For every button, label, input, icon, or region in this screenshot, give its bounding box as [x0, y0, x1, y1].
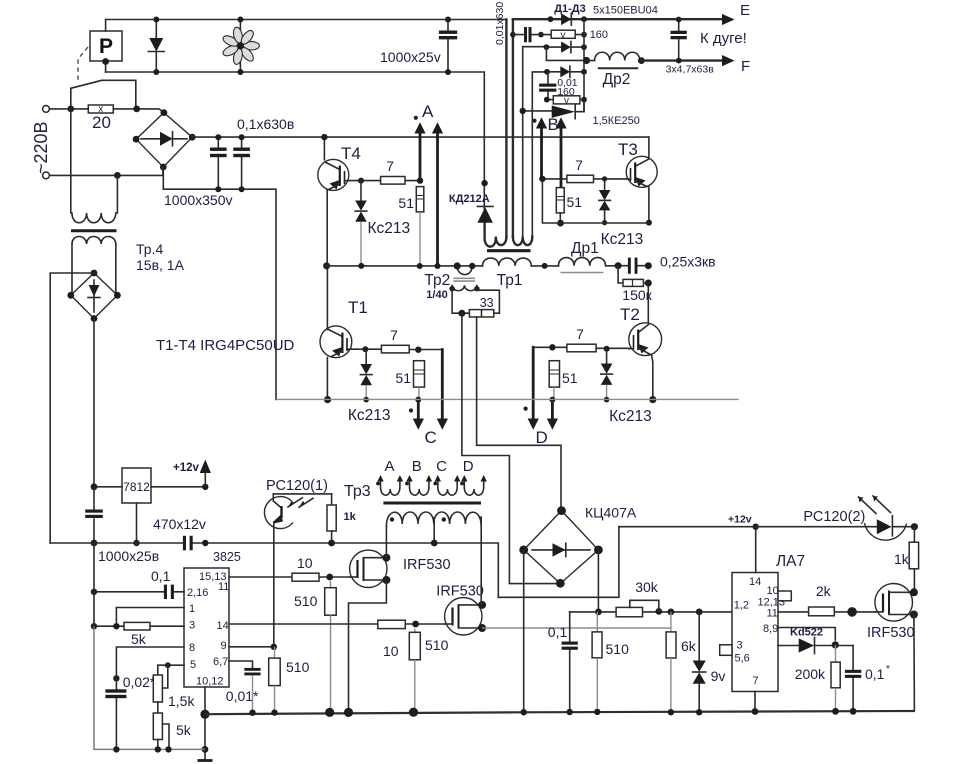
- svg-text:5,6: 5,6: [735, 653, 750, 665]
- svg-text:v: v: [564, 96, 569, 107]
- svg-text:7: 7: [576, 326, 584, 342]
- svg-text:1k: 1k: [344, 511, 357, 523]
- svg-text:0,25х3кв: 0,25х3кв: [660, 254, 716, 270]
- svg-text:В: В: [548, 115, 559, 134]
- svg-text:Тр1: Тр1: [497, 272, 523, 289]
- svg-text:200k: 200k: [795, 666, 826, 682]
- svg-text:6,7: 6,7: [213, 656, 228, 668]
- svg-text:7: 7: [575, 157, 583, 173]
- svg-text:1: 1: [189, 603, 195, 615]
- svg-text:v: v: [561, 30, 566, 41]
- svg-text:IRF530: IRF530: [867, 625, 915, 641]
- svg-text:7812: 7812: [123, 480, 150, 494]
- svg-text:0,02*: 0,02*: [123, 674, 156, 690]
- svg-text:РС120(2): РС120(2): [803, 509, 865, 525]
- svg-text:Др1: Др1: [571, 240, 599, 257]
- svg-text:КЦ407А: КЦ407А: [585, 505, 637, 521]
- svg-text:8: 8: [189, 642, 195, 654]
- svg-text:11: 11: [767, 608, 778, 620]
- svg-text:Тр2: Тр2: [424, 272, 450, 289]
- svg-text:P: P: [99, 35, 113, 58]
- svg-text:Т2: Т2: [620, 305, 640, 324]
- svg-text:14: 14: [749, 576, 761, 588]
- svg-text:Kd522: Kd522: [790, 627, 823, 639]
- svg-text:51: 51: [567, 194, 583, 210]
- svg-text:30k: 30k: [635, 579, 659, 595]
- svg-text:9: 9: [221, 640, 227, 652]
- svg-text:Кс213: Кс213: [368, 220, 411, 237]
- svg-text:10: 10: [383, 643, 399, 659]
- svg-text:1,2: 1,2: [734, 600, 749, 612]
- svg-text:В: В: [412, 458, 422, 475]
- svg-text:510: 510: [425, 637, 449, 653]
- svg-text:1/40: 1/40: [426, 289, 447, 301]
- svg-text:D: D: [463, 458, 474, 475]
- svg-text:+12v: +12v: [728, 514, 752, 526]
- svg-text:3: 3: [737, 640, 743, 652]
- svg-text:0,1: 0,1: [151, 568, 171, 584]
- svg-text:+12v: +12v: [173, 462, 200, 474]
- svg-text:D: D: [536, 428, 548, 447]
- svg-text:1,5k: 1,5k: [168, 693, 195, 709]
- svg-text:IRF530: IRF530: [403, 557, 451, 573]
- svg-text:10: 10: [767, 585, 779, 597]
- svg-text:10: 10: [297, 555, 313, 571]
- svg-text:Кс213: Кс213: [348, 407, 391, 424]
- svg-text:Кс213: Кс213: [601, 231, 644, 248]
- svg-text:1,5КЕ250: 1,5КЕ250: [593, 115, 640, 127]
- svg-text:8,9: 8,9: [763, 623, 778, 635]
- svg-text:3х4,7х63в: 3х4,7х63в: [666, 64, 715, 76]
- svg-text:6k: 6k: [681, 638, 697, 654]
- svg-text:Т1: Т1: [348, 298, 368, 317]
- svg-text:150к: 150к: [622, 287, 652, 303]
- svg-text:А: А: [384, 458, 394, 475]
- svg-text:51: 51: [395, 370, 411, 386]
- svg-text:3825: 3825: [213, 550, 241, 564]
- svg-text:14: 14: [217, 620, 229, 632]
- svg-text:5х150EBU04: 5х150EBU04: [593, 5, 658, 17]
- svg-text:1000x25v: 1000x25v: [380, 49, 441, 65]
- svg-text:5k: 5k: [131, 631, 147, 647]
- svg-text:С: С: [436, 458, 447, 475]
- svg-text:Др2: Др2: [603, 71, 631, 88]
- svg-text:РС120(1): РС120(1): [266, 478, 328, 494]
- svg-text:20: 20: [92, 113, 111, 132]
- svg-text:F: F: [741, 58, 750, 75]
- svg-text:7: 7: [753, 675, 759, 687]
- svg-text:К дуге!: К дуге!: [700, 30, 747, 47]
- svg-text:0,01х630: 0,01х630: [494, 2, 506, 45]
- svg-text:КД212А: КД212А: [449, 193, 490, 205]
- svg-text:470х12v: 470х12v: [153, 516, 206, 532]
- svg-text:0,1: 0,1: [865, 666, 885, 682]
- svg-text:Тр3: Тр3: [344, 483, 371, 500]
- svg-text:Д1-Д3: Д1-Д3: [554, 3, 586, 15]
- svg-text:7: 7: [386, 158, 394, 174]
- svg-text:0,01*: 0,01*: [226, 688, 259, 704]
- svg-text:2k: 2k: [816, 583, 832, 599]
- svg-text:ЛА7: ЛА7: [776, 553, 805, 570]
- svg-text:IRF530: IRF530: [436, 584, 484, 600]
- svg-text:1000х350v: 1000х350v: [164, 192, 233, 208]
- svg-text:Т3: Т3: [618, 140, 638, 159]
- svg-text:E: E: [740, 2, 750, 19]
- svg-text:11: 11: [218, 581, 229, 593]
- svg-text:Кс213: Кс213: [609, 408, 652, 425]
- svg-text:*: *: [886, 664, 890, 675]
- svg-text:~220В: ~220В: [31, 121, 51, 174]
- svg-text:1000х25в: 1000х25в: [98, 548, 159, 564]
- svg-text:510: 510: [606, 641, 630, 657]
- svg-text:С: С: [425, 428, 437, 447]
- svg-text:Т4: Т4: [341, 144, 361, 163]
- svg-text:3: 3: [189, 620, 195, 632]
- svg-text:9v: 9v: [711, 668, 726, 684]
- svg-text:510: 510: [286, 659, 310, 675]
- svg-text:15в, 1А: 15в, 1А: [136, 257, 185, 273]
- svg-text:T1-T4 IRG4PC50UD: T1-T4 IRG4PC50UD: [156, 337, 295, 354]
- svg-text:51: 51: [398, 195, 414, 211]
- svg-text:1k: 1k: [894, 551, 910, 567]
- svg-text:510: 510: [294, 593, 318, 609]
- svg-text:33: 33: [480, 296, 494, 310]
- svg-text:7: 7: [390, 327, 398, 343]
- svg-text:10,12: 10,12: [196, 676, 224, 688]
- svg-text:5k: 5k: [176, 722, 192, 738]
- svg-text:51: 51: [562, 370, 578, 386]
- svg-text:А: А: [422, 102, 434, 121]
- svg-text:0,1х630в: 0,1х630в: [237, 116, 294, 132]
- svg-text:2,16: 2,16: [187, 587, 208, 599]
- svg-text:5: 5: [190, 659, 196, 671]
- svg-text:160: 160: [590, 29, 608, 41]
- svg-text:Тр.4: Тр.4: [136, 241, 163, 257]
- svg-text:0,1: 0,1: [548, 624, 568, 640]
